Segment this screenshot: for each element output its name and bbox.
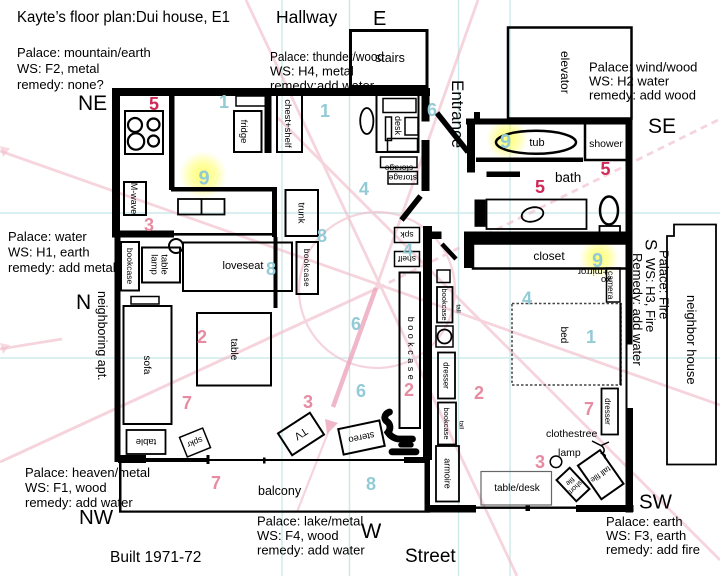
svg-text:bookcase: bookcase — [440, 288, 449, 320]
svg-text:table: table — [136, 436, 157, 447]
svg-text:W: W — [361, 519, 382, 543]
svg-text:5: 5 — [535, 177, 545, 197]
svg-text:4: 4 — [359, 179, 369, 199]
svg-text:Palace: thunder/wood: Palace: thunder/wood — [270, 49, 384, 64]
svg-text:9: 9 — [199, 168, 210, 190]
svg-text:lamp: lamp — [558, 447, 581, 459]
svg-text:3: 3 — [144, 215, 154, 235]
svg-text:tub: tub — [529, 137, 544, 149]
svg-text:remedy: add wood: remedy: add wood — [589, 88, 696, 103]
svg-text:Palace: heaven/metal: Palace: heaven/metal — [25, 465, 150, 480]
svg-text:5: 5 — [149, 94, 159, 114]
svg-text:WS: H2 water: WS: H2 water — [589, 74, 670, 89]
svg-text:2: 2 — [474, 383, 484, 403]
svg-text:storage: storage — [388, 173, 417, 183]
svg-text:remedy:add water: remedy:add water — [270, 78, 375, 93]
svg-text:Palace: earth: Palace: earth — [606, 514, 683, 529]
svg-text:WS: F3, earth: WS: F3, earth — [606, 528, 686, 543]
svg-text:7: 7 — [211, 473, 221, 493]
svg-text:1: 1 — [219, 92, 229, 112]
svg-text:remedy: none?: remedy: none? — [17, 77, 104, 92]
svg-text:7: 7 — [584, 399, 594, 419]
svg-text:desk: desk — [393, 116, 403, 136]
svg-text:SE: SE — [648, 115, 676, 138]
svg-text:WS: F4, wood: WS: F4, wood — [257, 528, 339, 543]
svg-text:S: S — [642, 239, 661, 250]
svg-text:bath: bath — [555, 170, 581, 185]
svg-text:6: 6 — [351, 314, 361, 334]
svg-text:Entrance: Entrance — [448, 80, 467, 148]
svg-text:tall: tall — [455, 304, 462, 313]
svg-text:4: 4 — [522, 289, 532, 309]
svg-text:table/desk: table/desk — [494, 483, 541, 494]
svg-text:4: 4 — [403, 240, 413, 260]
svg-text:elevator: elevator — [558, 51, 572, 94]
svg-text:dresser: dresser — [442, 362, 451, 389]
svg-text:2: 2 — [404, 380, 414, 400]
svg-text:WS: H4, metal: WS: H4, metal — [270, 64, 354, 79]
svg-text:bookcase: bookcase — [442, 407, 451, 439]
svg-text:8: 8 — [266, 259, 276, 279]
svg-text:storage: storage — [385, 163, 414, 173]
svg-text:2: 2 — [197, 327, 207, 347]
svg-text:Remedy: add water: Remedy: add water — [630, 253, 645, 366]
svg-text:8: 8 — [317, 226, 327, 246]
svg-text:table: table — [228, 339, 239, 361]
svg-text:M-wave: M-wave — [129, 183, 139, 215]
svg-text:chest+shelf: chest+shelf — [282, 99, 293, 148]
svg-text:3: 3 — [535, 452, 545, 472]
svg-text:fridge: fridge — [238, 120, 249, 144]
svg-text:remedy: add fire: remedy: add fire — [606, 542, 700, 557]
svg-text:remedy: add water: remedy: add water — [257, 543, 365, 558]
svg-text:neighbor house: neighbor house — [684, 295, 699, 385]
svg-text:shower: shower — [589, 138, 623, 150]
svg-text:Hallway: Hallway — [276, 7, 338, 27]
svg-text:Palace: lake/metal: Palace: lake/metal — [257, 514, 363, 529]
svg-text:9: 9 — [500, 131, 511, 153]
svg-text:lamp: lamp — [149, 254, 160, 275]
svg-text:tall: tall — [458, 421, 465, 430]
svg-text:trunk: trunk — [296, 202, 307, 223]
svg-text:bookcase: bookcase — [302, 249, 311, 287]
svg-text:5: 5 — [601, 159, 611, 179]
svg-text:WS: H1, earth: WS: H1, earth — [8, 245, 90, 260]
svg-text:WS: F2, metal: WS: F2, metal — [17, 61, 99, 76]
svg-text:bookcase: bookcase — [125, 248, 135, 285]
svg-text:6: 6 — [356, 381, 366, 401]
svg-text:NW: NW — [79, 506, 114, 529]
svg-text:Street: Street — [405, 546, 456, 567]
svg-text:armoire: armoire — [443, 458, 453, 489]
svg-text:WS: F1, wood: WS: F1, wood — [25, 480, 107, 495]
svg-text:E: E — [373, 8, 386, 30]
svg-text:sofa: sofa — [141, 356, 152, 375]
svg-text:bed: bed — [558, 327, 569, 344]
svg-text:xo: xo — [601, 274, 611, 285]
svg-text:1: 1 — [320, 101, 330, 121]
svg-text:Palace: wind/wood: Palace: wind/wood — [589, 60, 697, 75]
svg-text:dresser: dresser — [603, 398, 612, 425]
svg-text:clothestree: clothestree — [546, 428, 598, 440]
svg-text:Palace: water: Palace: water — [8, 229, 87, 244]
svg-text:remedy: add metal: remedy: add metal — [8, 260, 116, 275]
svg-text:Built 1971-72: Built 1971-72 — [110, 549, 201, 566]
svg-text:bookcase: bookcase — [406, 317, 416, 384]
svg-text:7: 7 — [182, 393, 192, 413]
svg-text:N: N — [76, 291, 91, 314]
svg-text:3: 3 — [303, 392, 313, 412]
svg-text:loveseat: loveseat — [223, 260, 264, 272]
svg-text:balcony: balcony — [258, 484, 302, 498]
svg-text:closet: closet — [533, 249, 565, 263]
svg-text:NE: NE — [78, 92, 107, 115]
svg-text:Palace: mountain/earth: Palace: mountain/earth — [17, 45, 151, 60]
svg-text:8: 8 — [366, 474, 376, 494]
svg-text:6: 6 — [427, 100, 437, 120]
svg-text:1: 1 — [586, 327, 596, 347]
svg-text:9: 9 — [592, 250, 603, 272]
svg-text:neighboring apt.: neighboring apt. — [95, 291, 109, 381]
svg-text:spk: spk — [400, 230, 414, 240]
svg-text:SW: SW — [639, 491, 673, 514]
svg-text:Kayte’s floor plan:Dui house,: Kayte’s floor plan:Dui house, E1 — [17, 9, 230, 26]
